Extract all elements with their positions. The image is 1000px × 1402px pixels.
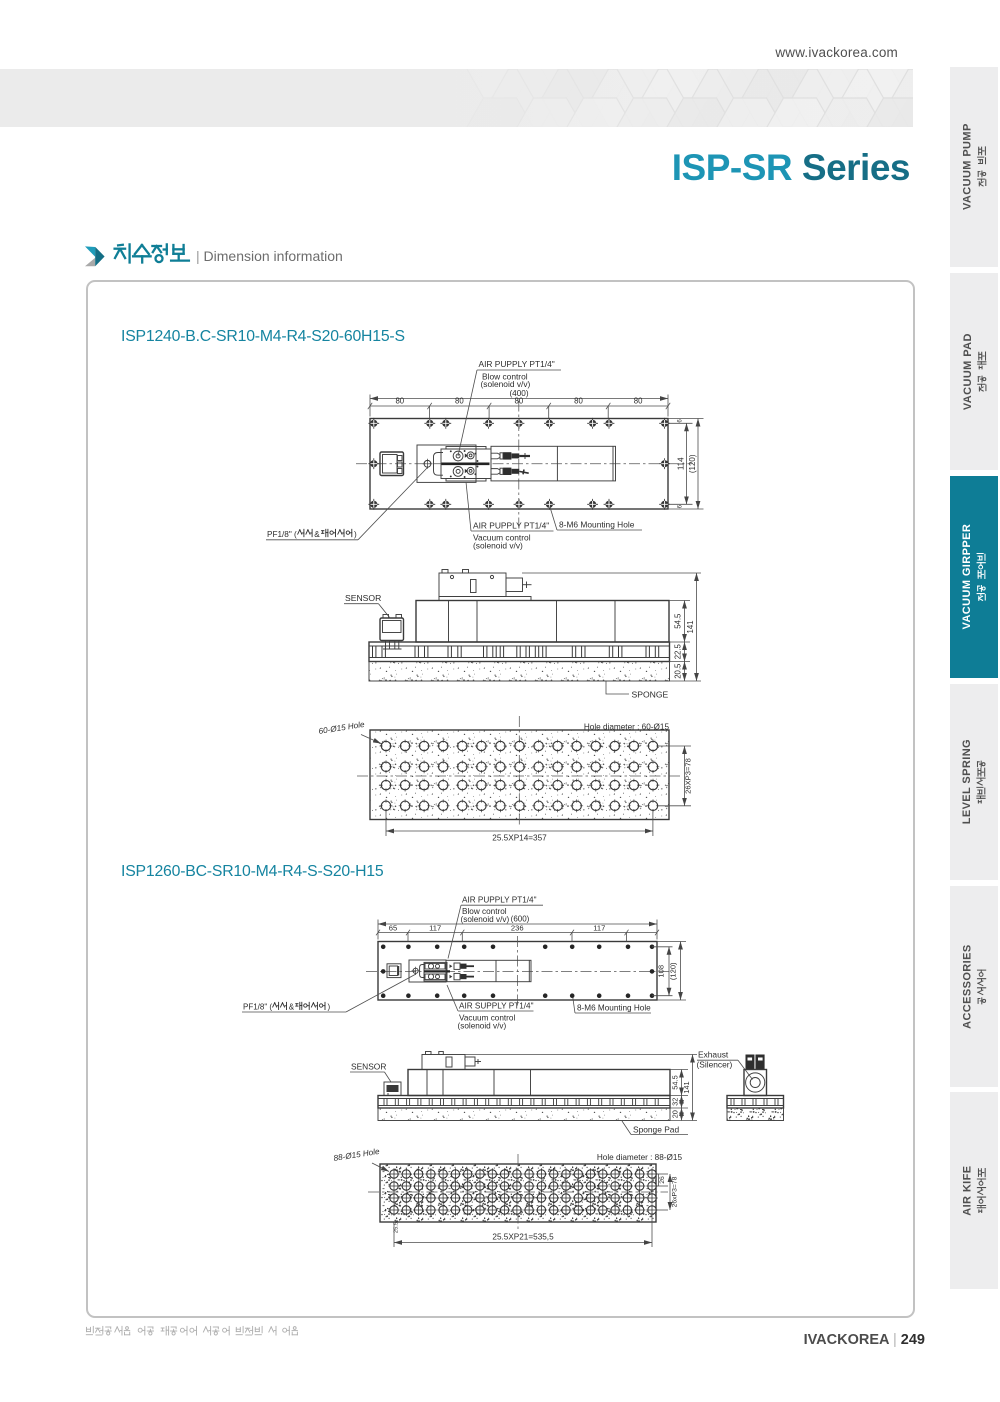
svg-text:Exhaust: Exhaust — [698, 1050, 729, 1060]
svg-text:25.5XP14=357: 25.5XP14=357 — [492, 834, 547, 843]
svg-text:80: 80 — [395, 397, 404, 406]
svg-text:117: 117 — [593, 923, 605, 932]
svg-text:AIR SUPPLY PT1/4": AIR SUPPLY PT1/4" — [459, 1002, 534, 1011]
svg-text:SENSOR: SENSOR — [351, 1062, 386, 1072]
svg-text:Hole diameter : 60-Ø15: Hole diameter : 60-Ø15 — [584, 723, 670, 732]
svg-text:88-Ø15 Hole: 88-Ø15 Hole — [333, 1147, 381, 1163]
svg-text:PF1/8" (: PF1/8" ( — [267, 530, 297, 539]
svg-text:(600): (600) — [511, 915, 530, 924]
svg-text:108: 108 — [657, 965, 666, 978]
svg-text:Hole diameter : 88-Ø15: Hole diameter : 88-Ø15 — [597, 1153, 683, 1162]
svg-text:22.5: 22.5 — [674, 643, 683, 659]
svg-text:8-M6 Mounting Hole: 8-M6 Mounting Hole — [577, 1004, 651, 1013]
svg-text:(Silencer): (Silencer) — [697, 1060, 733, 1070]
svg-text:236: 236 — [511, 923, 524, 932]
svg-text:25.5: 25.5 — [394, 1222, 400, 1233]
svg-text:(solenoid v/v): (solenoid v/v) — [458, 1021, 507, 1030]
svg-text:6: 6 — [677, 419, 684, 423]
svg-text:141: 141 — [682, 1081, 691, 1093]
svg-text:54.5: 54.5 — [674, 613, 683, 629]
svg-text:(solenoid v/v): (solenoid v/v) — [473, 541, 523, 551]
svg-text:&: & — [289, 1003, 295, 1012]
svg-text:117: 117 — [429, 923, 441, 932]
svg-text:(solenoid v/v): (solenoid v/v) — [461, 915, 510, 924]
svg-text:(solenoid v/v): (solenoid v/v) — [481, 379, 531, 389]
svg-text:20.5: 20.5 — [674, 663, 683, 679]
svg-text:25.5XP21=535,5: 25.5XP21=535,5 — [492, 1233, 554, 1242]
svg-text:26XP3=78: 26XP3=78 — [684, 758, 693, 794]
svg-text:AIR PUPPLY PT1/4": AIR PUPPLY PT1/4" — [473, 521, 549, 531]
svg-text:PF1/8" (: PF1/8" ( — [243, 1003, 272, 1012]
svg-text:20: 20 — [671, 1110, 680, 1118]
svg-text:60-Ø15 Hole: 60-Ø15 Hole — [318, 720, 366, 736]
svg-text:Sponge Pad: Sponge Pad — [633, 1125, 679, 1135]
svg-text:(120): (120) — [688, 454, 697, 473]
svg-text:SPONGE: SPONGE — [632, 690, 669, 700]
svg-text:80: 80 — [515, 397, 524, 406]
svg-text:&: & — [314, 530, 320, 539]
svg-text:80: 80 — [634, 397, 643, 406]
svg-text:AIR PUPPLY PT1/4": AIR PUPPLY PT1/4" — [479, 359, 555, 369]
svg-text:): ) — [354, 530, 357, 539]
svg-text:80: 80 — [455, 397, 464, 406]
svg-text:): ) — [328, 1003, 331, 1012]
svg-text:AIR PUPPLY PT1/4": AIR PUPPLY PT1/4" — [462, 896, 537, 905]
svg-text:80: 80 — [574, 397, 583, 406]
svg-text:114: 114 — [677, 457, 686, 470]
svg-text:32: 32 — [671, 1098, 680, 1106]
svg-text:SENSOR: SENSOR — [345, 593, 381, 603]
svg-text:54.5: 54.5 — [671, 1075, 680, 1089]
svg-text:8-M6 Mounting Hole: 8-M6 Mounting Hole — [559, 520, 635, 530]
svg-text:26xP3=78: 26xP3=78 — [672, 1176, 679, 1207]
svg-text:141: 141 — [686, 620, 695, 633]
svg-text:26: 26 — [659, 1176, 666, 1184]
svg-text:6: 6 — [677, 504, 684, 508]
svg-text:(120): (120) — [669, 962, 678, 980]
svg-text:65: 65 — [389, 923, 397, 932]
